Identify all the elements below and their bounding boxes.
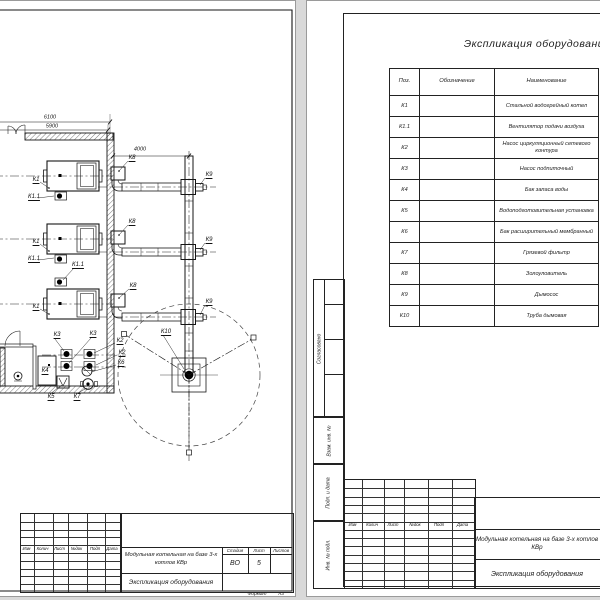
rev-col: Дата [104,546,120,551]
equip-cell [420,180,495,200]
position-label: К1.1 [72,262,84,268]
position-label: К1 [33,304,40,310]
equip-cell [420,138,495,158]
equip-table: Поз.ОбозначениеНаименованиеК1Стальной во… [389,68,599,327]
right-project-title: Модульная котельная на базе 3-х котлов К… [474,529,600,559]
equip-table-row: К3Насос подпиточный [390,159,598,180]
equip-cell [420,96,495,116]
equip-cell [420,222,495,242]
explication-title: Экспликация оборудования [417,37,600,51]
rev-col: Изм [20,546,33,551]
right-doc-title: Экспликация оборудования [474,559,600,587]
equip-cell [420,201,495,221]
stamp-label: Согласовано [316,333,322,364]
sheet-value: 5 [248,554,270,573]
position-label: К10 [161,329,171,335]
equip-table-row: К5Водоподготовительная установка [390,201,598,222]
equip-cell: К5 [390,201,420,221]
left-project-title: Модульная котельная на базе 3-х котлов К… [120,547,222,573]
position-label: К7 [74,394,81,400]
equip-cell [420,306,495,326]
stamp-inv-podl: Инв. № подл. [313,520,345,589]
equip-table-row: К1Стальной водогрейный котел [390,96,598,117]
position-label: К1.1 [28,194,40,200]
equip-table-row: К2Насос циркуляционный сетевого контура [390,138,598,159]
position-label: К8 [129,155,136,161]
position-label: К5 [48,394,55,400]
position-label: К3 [54,332,61,338]
sheet-label: Лист [248,547,270,554]
left-doc-title: Экспликация оборудования [120,573,222,591]
position-label: К2 [117,338,124,344]
position-label: К6 [118,360,125,366]
equip-cell: Бак расширительный мембранный [495,222,598,242]
position-label: К9 [206,172,213,178]
rev-col: №док [67,546,86,551]
equip-cell: К1 [390,96,420,116]
equip-cell: Грязевой фильтр [495,243,598,263]
left-sheet: 610059004000К1К1К1К1.1К1.1К1.1К8К8К8К9К9… [0,0,296,597]
equip-cell: Дымосос [495,285,598,305]
rev-col: Изм [344,522,361,527]
equip-table-row: К10Труба дымовая [390,306,598,326]
rev-col: Подп [86,546,104,551]
position-label: К8 [130,283,137,289]
equip-table-row: К1.1Вентилятор подачи воздуха [390,117,598,138]
stage-value: ВО [222,554,248,573]
equip-cell: Вентилятор подачи воздуха [495,117,598,137]
equip-cell [420,285,495,305]
equip-cell [420,264,495,284]
equip-cell: Стальной водогрейный котел [495,96,598,116]
equip-cell: К10 [390,306,420,326]
equip-cell: К4 [390,180,420,200]
rev-col: Подп [427,522,451,527]
left-rev-grid [20,513,122,593]
equip-cell: К1.1 [390,117,420,137]
equip-cell [420,117,495,137]
equip-cell: Насос циркуляционный сетевого контура [495,138,598,158]
equip-cell: К2 [390,138,420,158]
position-label: К1 [33,239,40,245]
position-label: К2 [119,350,126,356]
position-label: К9 [206,299,213,305]
dimension-label: 6100 [44,115,56,121]
equip-cell [420,159,495,179]
dimension-label: 4000 [134,147,146,153]
equip-cell: Труба дымовая [495,306,598,326]
stamp-vzam-inv: Взам. инв. № [313,416,345,465]
equip-cell [420,243,495,263]
equip-cell: К8 [390,264,420,284]
equip-table-row: К8Золоуловитель [390,264,598,285]
position-label: К8 [129,219,136,225]
equip-cell: К3 [390,159,420,179]
equip-table-row: К6Бак расширительный мембранный [390,222,598,243]
equip-header-cell: Поз. [390,69,420,95]
position-label: К3 [90,331,97,337]
stamp-podp-data: Подп. и дата [313,463,345,522]
stamp-soglasovano: Согласовано [313,279,345,418]
position-label: К9 [206,237,213,243]
right-sheet: Экспликация оборудования Поз.Обозначение… [306,0,600,597]
position-label: К1 [33,177,40,183]
equip-table-row: К9Дымосос [390,285,598,306]
sheets-label: Листов [270,547,292,554]
dimension-label: 5900 [46,124,58,130]
rev-col: Лист [383,522,403,527]
equip-cell: К9 [390,285,420,305]
equip-cell: Бак запаса воды [495,180,598,200]
plan-labels-layer: 610059004000К1К1К1К1.1К1.1К1.1К8К8К8К9К9… [0,1,296,598]
equip-cell: Водоподготовительная установка [495,201,598,221]
equip-header-cell: Наименование [495,69,598,95]
equip-cell: Золоуловитель [495,264,598,284]
left-rev-headers: Изм Колич Лист №док Подп Дата [20,544,120,552]
equip-header-cell: Обозначение [420,69,495,95]
rev-col: №док [403,522,427,527]
equip-table-row: К7Грязевой фильтр [390,243,598,264]
right-rev-headers: Изм Колич Лист №док Подп Дата [344,521,474,529]
format-value: А3 [274,591,288,598]
stamp-label: Инв. № подл. [326,539,332,570]
equip-table-header-row: Поз.ОбозначениеНаименование [390,69,598,96]
rev-col: Лист [52,546,67,551]
rev-col: Колич [361,522,383,527]
equip-cell: К6 [390,222,420,242]
equip-cell: Насос подпиточный [495,159,598,179]
stamp-label: Подп. и дата [326,477,332,508]
rev-col: Колич [33,546,52,551]
equip-cell: К7 [390,243,420,263]
format-label: Формат [240,591,274,598]
stamp-label: Взам. инв. № [326,425,332,456]
position-label: К4 [42,368,49,374]
rev-col: Дата [451,522,474,527]
position-label: К1.1 [28,256,40,262]
equip-table-row: К4Бак запаса воды [390,180,598,201]
right-rev-grid [344,479,476,589]
stage-label: Стадия [222,547,248,554]
